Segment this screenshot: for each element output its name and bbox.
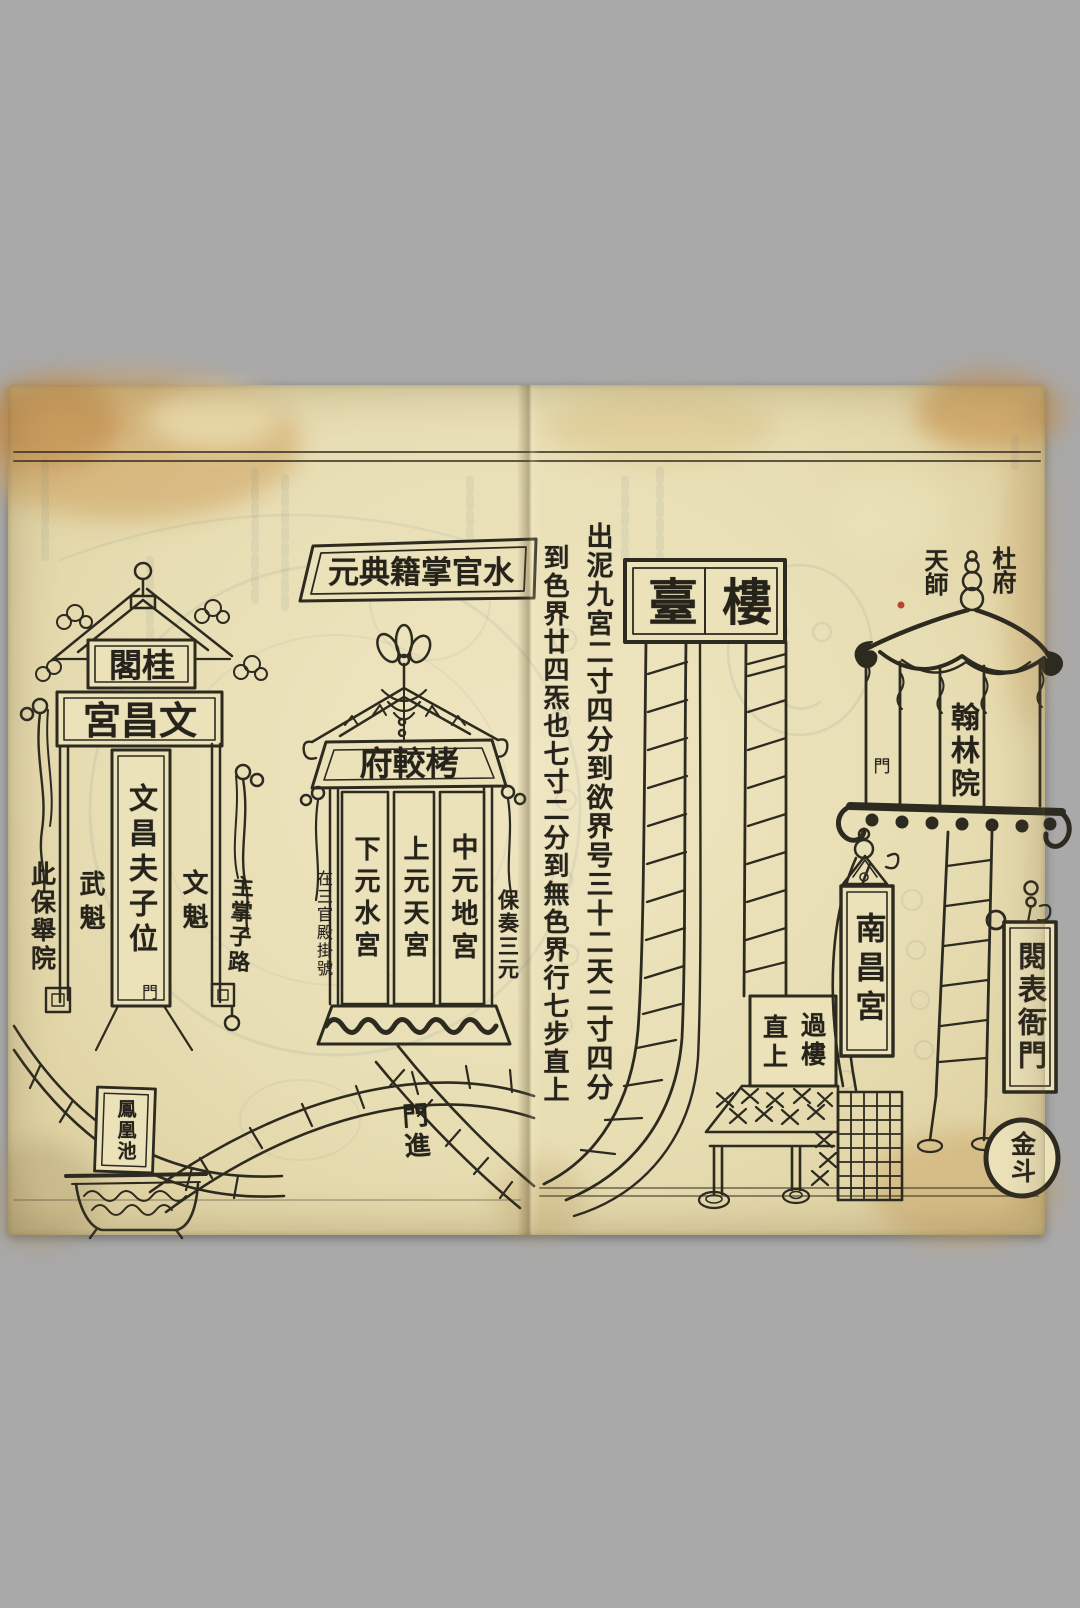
- loutai-cell-lou: 樓: [708, 566, 778, 636]
- inscription-column-1: 出泥九宮二寸四分到欲界号三十二天二寸四分: [577, 506, 617, 1118]
- note-zhuzhang: 主掌子路: [219, 863, 257, 987]
- note-registration: 在三官殿掛號: [310, 862, 336, 986]
- kaojiao-panel-xiayuan: 下元水宮: [344, 800, 386, 998]
- guolou-left-column: 直上: [758, 1008, 790, 1078]
- gate-panel-right: 文魁: [176, 848, 210, 958]
- gate-door-note: 門: [138, 980, 158, 1004]
- page-fold-shadow: [517, 385, 541, 1235]
- gate-sign-top: 閣桂: [94, 645, 190, 685]
- manuscript-scan: 元典籍掌官水 閣桂 宮昌文 武魁 文昌夫子位 門 文魁 此保舉院 主掌子路 府較…: [0, 0, 1080, 1608]
- red-fleck: [898, 602, 905, 609]
- yuebiao-plaque-text: 閱表衙門: [1012, 930, 1048, 1084]
- kaojiao-sign: 府較栲: [334, 744, 484, 782]
- pavilion-label-tianshi: 天師: [918, 544, 950, 600]
- kaojiao-panel-zhongyuan: 中元地宮: [440, 800, 484, 998]
- note-left-edge: 此保舉院: [24, 855, 60, 979]
- loutai-cell-tai: 臺: [634, 566, 704, 636]
- nanchang-plaque-text: 南昌宮: [847, 892, 887, 1048]
- gate-sign-main: 宮昌文: [68, 700, 212, 742]
- guolou-right-column: 過樓: [795, 1002, 829, 1080]
- water-office-banner: 元典籍掌官水: [314, 552, 528, 594]
- gate-panel-left: 武魁: [72, 844, 108, 964]
- pavilion-label-dufu: 杜府: [986, 540, 1018, 600]
- pavilion-door-note: 門: [868, 752, 890, 778]
- kaojiao-panel-shangyuan: 上元天宮: [394, 800, 434, 998]
- gate-panel-center: 文昌夫子位: [120, 760, 162, 980]
- phoenix-pond-plaque: 鳳凰池: [106, 1094, 144, 1166]
- hanlin-hall-plaque: 翰林院: [944, 698, 982, 804]
- jindou-seal-text: 金斗: [1000, 1124, 1044, 1192]
- note-gate-entry: 門進: [394, 1097, 435, 1167]
